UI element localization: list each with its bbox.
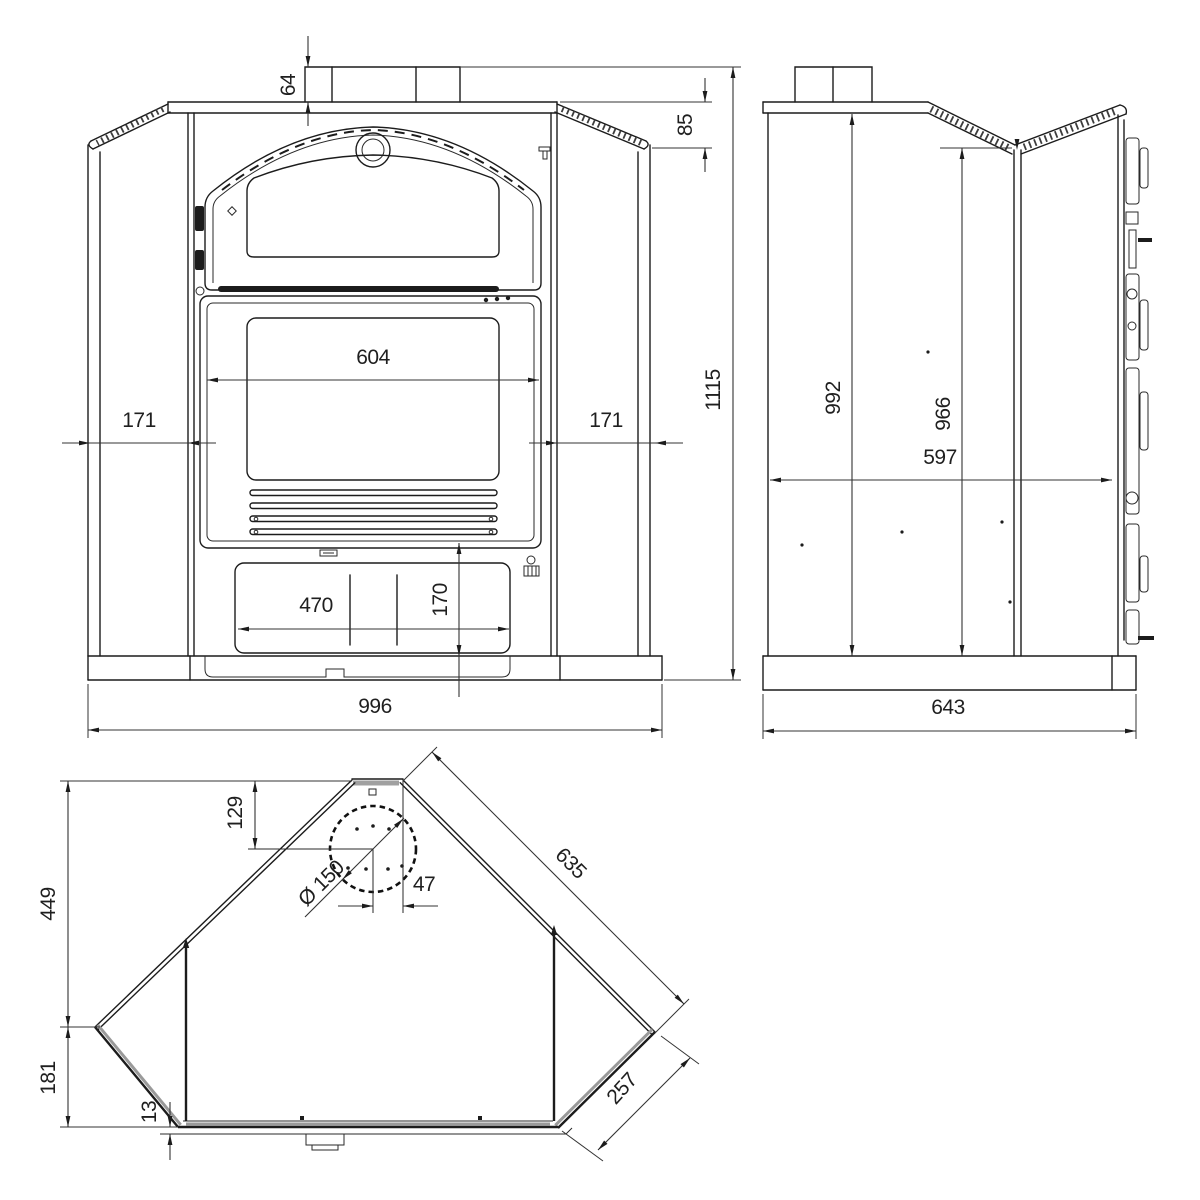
hinge-icon [195, 250, 204, 270]
louver [250, 516, 497, 522]
dim-flue-offset: 47 [338, 873, 438, 908]
dim-overall-height: 1115 [664, 67, 741, 680]
dim-flue-from-back: 129 [224, 781, 257, 849]
front-height-label: 992 [822, 381, 845, 415]
flue-from-back-label: 129 [224, 796, 247, 830]
flue-offset-label: 47 [413, 873, 435, 896]
dim-front-height: 992 [822, 114, 854, 656]
diamond-mark-icon [228, 207, 236, 215]
front-view-outline [88, 67, 662, 680]
plan-view-dimensions: 449 181 13 129 [37, 747, 699, 1161]
flue-collar-height-label: 64 [277, 73, 300, 96]
stove-dimension-drawing: 64 85 604 [0, 0, 1200, 1200]
plate-to-shoulder-label: 85 [674, 114, 697, 136]
left-panel-label: 171 [122, 409, 156, 432]
door-hinge-hardware [1126, 138, 1154, 644]
dim-base-height: 170 [429, 543, 461, 697]
dim-plate-to-shoulder: 85 [560, 78, 712, 172]
side-view-outline [763, 67, 1136, 690]
louver [250, 490, 497, 496]
drawing-canvas: 64 85 604 [0, 0, 1200, 1200]
plan-view: 449 181 13 129 [37, 747, 699, 1161]
firebox-door [200, 286, 541, 576]
oven-door [195, 127, 550, 295]
front-view-dimensions: 64 85 604 [62, 36, 741, 738]
overall-depth-label: 643 [931, 696, 965, 719]
louver [250, 529, 497, 535]
flue-diameter-label: Ø 150 [294, 856, 349, 911]
right-panel-label: 171 [589, 409, 623, 432]
base-foot-tab [306, 1134, 344, 1145]
front-view: 64 85 604 [62, 36, 741, 738]
back-section-depth-label: 449 [37, 887, 60, 921]
oven-window [247, 155, 499, 257]
base-height-label: 170 [429, 583, 452, 617]
overall-width-label: 996 [358, 695, 392, 718]
hinge-icon [195, 206, 204, 231]
dim-door-width: 604 [207, 346, 539, 382]
brand-logo-icon [524, 556, 539, 576]
base-lip-label: 13 [138, 1101, 161, 1123]
flue-outlet [248, 781, 416, 913]
dim-drawer-width: 470 [238, 594, 509, 631]
firebox-window [247, 318, 499, 480]
side-view-dimensions: 992 966 597 [763, 114, 1136, 739]
dim-back-edge: 635 [403, 747, 689, 1033]
front-corner-depth-label: 181 [37, 1061, 60, 1095]
ash-drawer [235, 563, 510, 653]
louver [250, 503, 497, 509]
vent-ring-icon [356, 133, 390, 167]
dim-right-panel: 171 [529, 409, 683, 445]
dim-overall-depth: 643 [763, 694, 1136, 739]
drawer-width-label: 470 [299, 594, 333, 617]
dim-back-height: 966 [932, 139, 1019, 656]
back-edge-label: 635 [551, 843, 591, 883]
plan-view-outline [95, 779, 655, 1150]
handle-bar [218, 286, 499, 292]
back-height-label: 966 [932, 397, 955, 431]
dim-body-depth: 597 [770, 446, 1112, 482]
overall-height-label: 1115 [702, 369, 725, 411]
body-depth-label: 597 [923, 446, 957, 469]
damper-knob-icon [539, 147, 550, 151]
dim-left-panel: 171 [62, 409, 216, 445]
door-width-label: 604 [356, 346, 390, 369]
dim-overall-width: 996 [88, 684, 662, 738]
side-view: 992 966 597 [763, 67, 1154, 739]
